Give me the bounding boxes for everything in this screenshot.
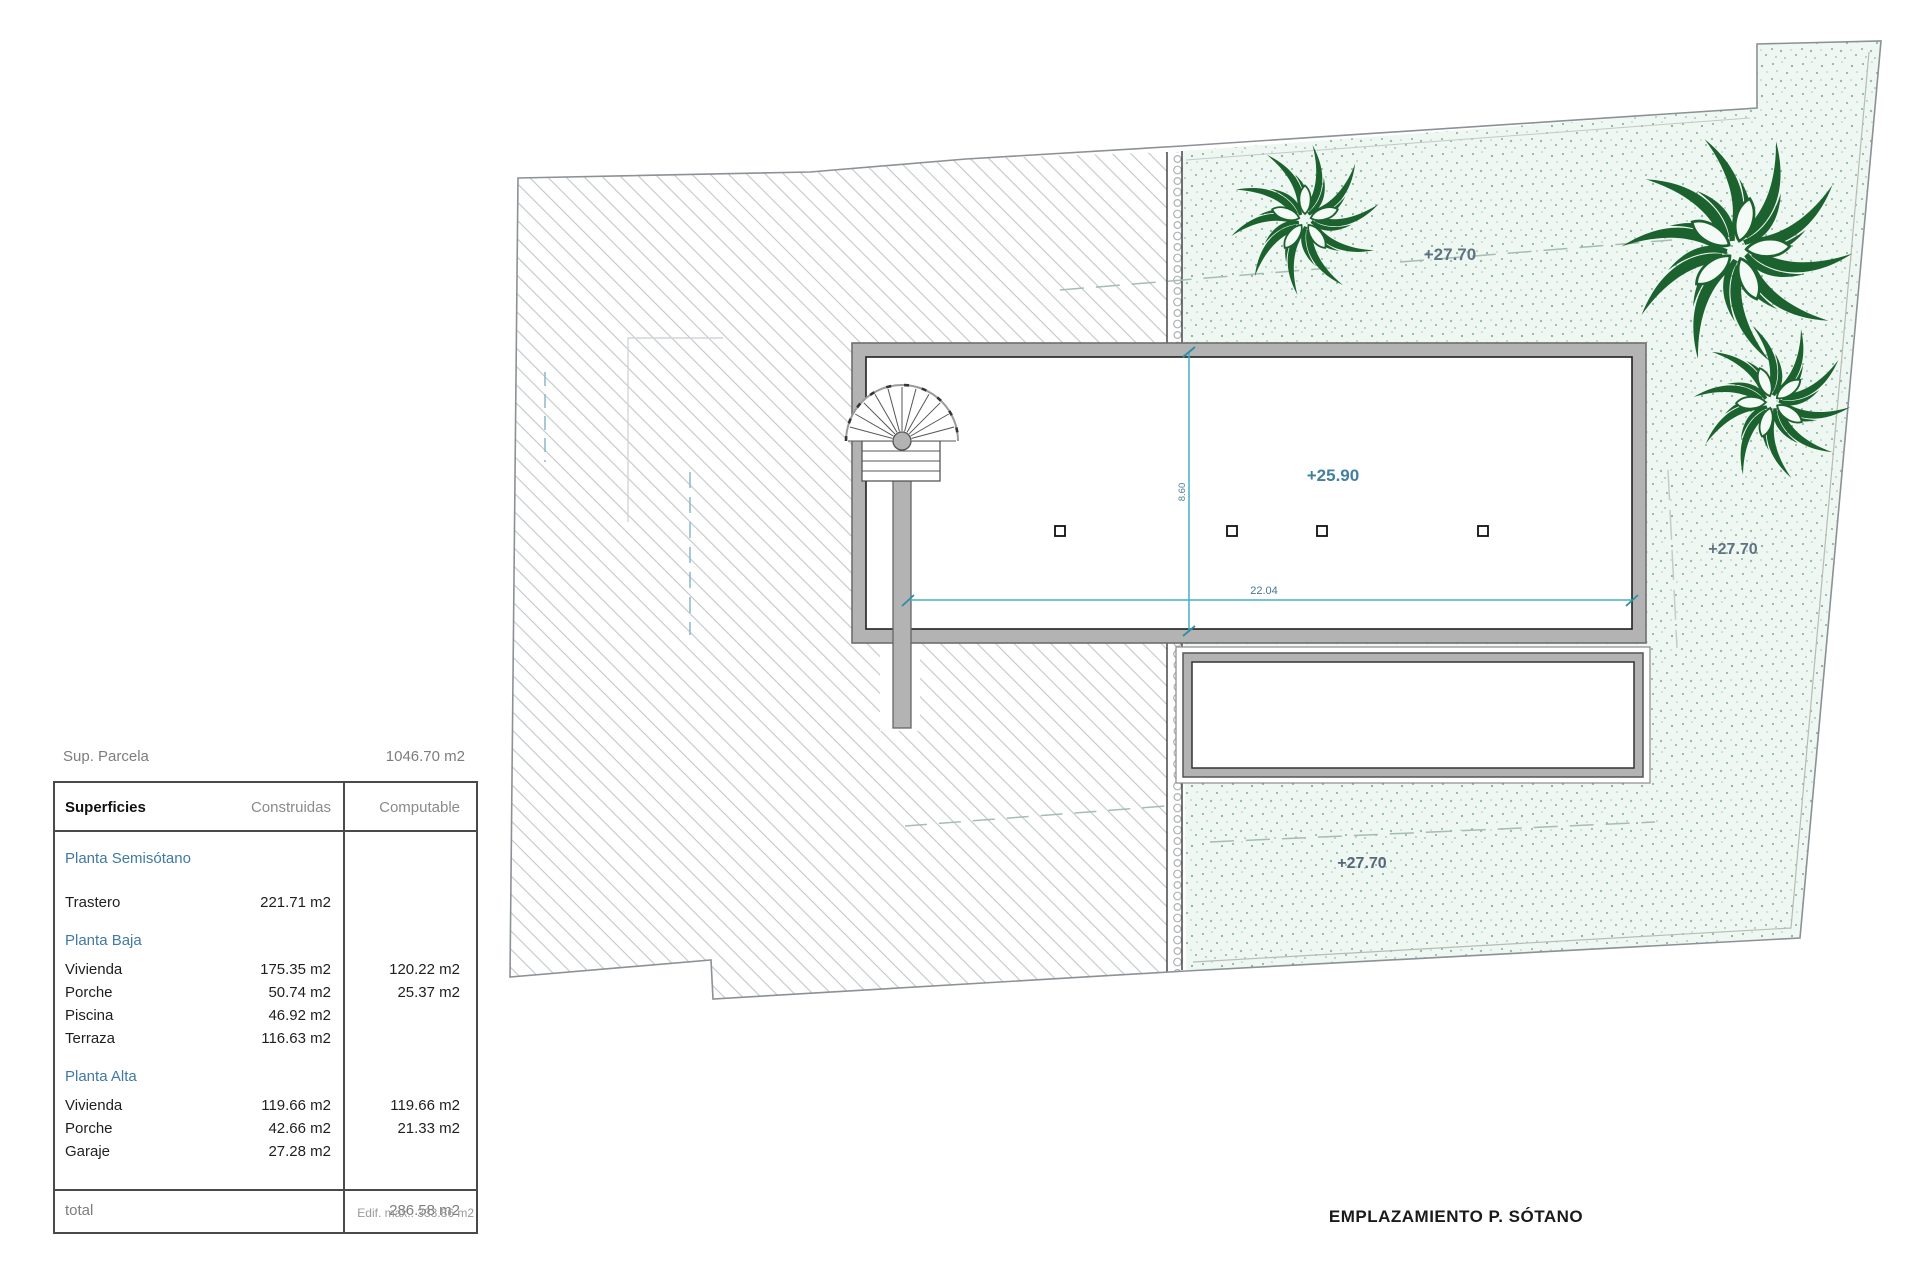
- row-construidas: 175.35 m2: [225, 958, 343, 981]
- parcel-summary: Sup. Parcela 1046.70 m2: [63, 748, 465, 765]
- dim-depth-label: 8.60: [1177, 483, 1188, 502]
- section-title: Planta Alta: [55, 1050, 225, 1094]
- row-computable: 25.37 m2: [343, 981, 476, 1004]
- col-header-computable: Computable: [343, 783, 476, 832]
- row-construidas: 116.63 m2: [225, 1027, 343, 1050]
- row-label: Trastero: [55, 876, 225, 914]
- section-title: Planta Baja: [55, 914, 225, 958]
- row-label: Vivienda: [55, 1094, 225, 1117]
- row-construidas: 27.28 m2: [225, 1140, 343, 1163]
- dim-width-label: 22.04: [1250, 585, 1278, 597]
- row-label: Terraza: [55, 1027, 225, 1050]
- areas-table: Superficies Construidas Computable Plant…: [53, 781, 478, 1234]
- row-computable: [343, 1140, 476, 1163]
- edif-max-note: Edif. max.: 333.86 m2: [53, 1206, 474, 1220]
- row-computable: 120.22 m2: [343, 958, 476, 981]
- stair-wall: [893, 441, 911, 728]
- row-computable: 21.33 m2: [343, 1117, 476, 1140]
- row-construidas: 221.71 m2: [225, 876, 343, 914]
- row-construidas: 42.66 m2: [225, 1117, 343, 1140]
- parcel-label: Sup. Parcela: [63, 748, 149, 765]
- col-header-superficies: Superficies: [55, 783, 225, 832]
- row-computable: [343, 876, 476, 914]
- level-garden-bottom: +27.70: [1337, 855, 1386, 872]
- row-construidas: 119.66 m2: [225, 1094, 343, 1117]
- col-header-construidas: Construidas: [225, 783, 343, 832]
- row-computable: [343, 1004, 476, 1027]
- section-title: Planta Semisótano: [55, 832, 225, 876]
- row-label: Piscina: [55, 1004, 225, 1027]
- row-label: Vivienda: [55, 958, 225, 981]
- row-construidas: 46.92 m2: [225, 1004, 343, 1027]
- row-label: Garaje: [55, 1140, 225, 1163]
- level-garden-top: +27.70: [1424, 245, 1476, 264]
- row-construidas: 50.74 m2: [225, 981, 343, 1004]
- annex: [1176, 647, 1650, 783]
- row-computable: [343, 1027, 476, 1050]
- row-label: Porche: [55, 981, 225, 1004]
- row-label: Porche: [55, 1117, 225, 1140]
- row-computable: 119.66 m2: [343, 1094, 476, 1117]
- parcel-value: 1046.70 m2: [386, 748, 465, 765]
- level-garden-right: +27.70: [1708, 541, 1757, 558]
- level-floor: +25.90: [1307, 466, 1359, 485]
- plan-caption: EMPLAZAMIENTO P. SÓTANO: [1329, 1207, 1583, 1226]
